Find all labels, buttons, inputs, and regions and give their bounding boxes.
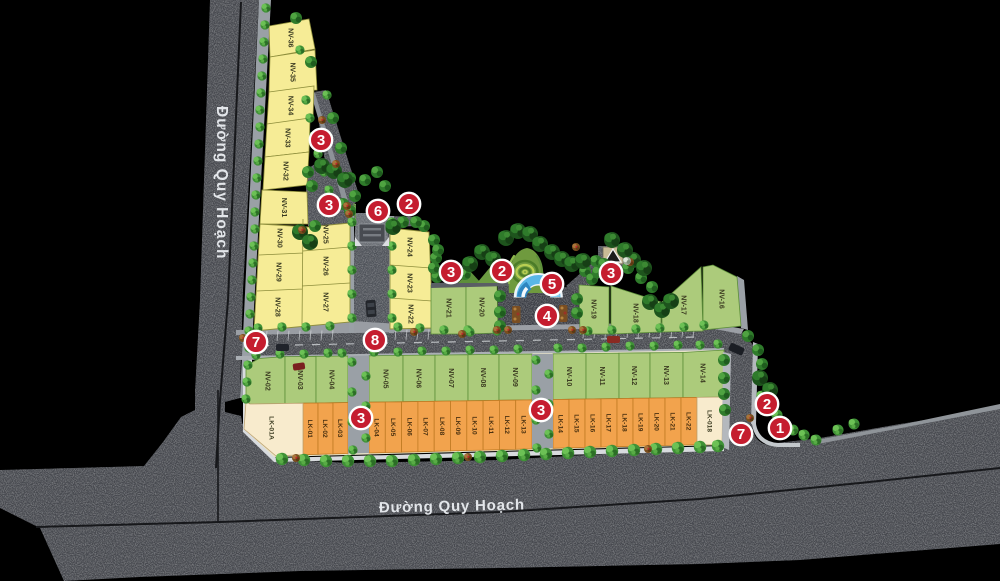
svg-text:1: 1 [776, 420, 784, 437]
svg-text:7: 7 [252, 334, 260, 351]
svg-text:NV-08: NV-08 [479, 368, 486, 388]
svg-text:LK-18: LK-18 [621, 413, 628, 432]
svg-text:4: 4 [543, 308, 552, 325]
svg-text:NV-07: NV-07 [447, 368, 454, 388]
svg-text:LK-13: LK-13 [520, 415, 527, 434]
svg-text:NV-26: NV-26 [322, 256, 329, 276]
svg-text:LK-01A: LK-01A [268, 416, 275, 440]
svg-text:LK-16: LK-16 [589, 414, 596, 433]
svg-text:LK-11: LK-11 [487, 416, 494, 434]
svg-text:LK-02: LK-02 [321, 419, 328, 438]
svg-text:NV-06: NV-06 [415, 369, 422, 389]
svg-text:LK-05: LK-05 [389, 418, 396, 437]
svg-text:NV-03: NV-03 [296, 370, 303, 390]
svg-text:LK-03: LK-03 [336, 419, 343, 438]
svg-text:NV-22: NV-22 [407, 304, 414, 324]
svg-text:NV-27: NV-27 [322, 292, 329, 312]
svg-text:NV-33: NV-33 [283, 128, 290, 148]
svg-text:NV-29: NV-29 [275, 262, 282, 282]
svg-text:NV-12: NV-12 [630, 366, 637, 386]
svg-text:NV-04: NV-04 [328, 370, 335, 390]
svg-text:3: 3 [447, 264, 455, 281]
svg-text:NV-28: NV-28 [274, 297, 281, 317]
svg-text:3: 3 [607, 265, 615, 282]
svg-text:2: 2 [498, 263, 506, 280]
svg-text:3: 3 [317, 132, 325, 149]
svg-text:LK-07: LK-07 [422, 417, 429, 436]
svg-text:NV-19: NV-19 [590, 299, 597, 319]
svg-text:7: 7 [737, 426, 745, 443]
svg-text:NV-16: NV-16 [718, 289, 725, 309]
svg-text:LK-04: LK-04 [373, 418, 380, 437]
svg-text:LK-14: LK-14 [557, 415, 564, 434]
svg-text:LK-15: LK-15 [573, 414, 580, 433]
svg-text:NV-32: NV-32 [282, 161, 289, 181]
svg-text:3: 3 [325, 197, 333, 214]
svg-text:LK-01: LK-01 [306, 420, 313, 439]
svg-text:LK-06: LK-06 [405, 418, 412, 437]
svg-text:NV-30: NV-30 [276, 228, 283, 248]
svg-text:NV-24: NV-24 [406, 237, 413, 257]
svg-text:NV-13: NV-13 [662, 365, 669, 385]
svg-text:NV-09: NV-09 [511, 367, 518, 387]
svg-text:LK-12: LK-12 [503, 416, 510, 435]
svg-text:NV-18: NV-18 [632, 303, 639, 323]
svg-text:NV-34: NV-34 [286, 96, 293, 116]
svg-text:NV-31: NV-31 [280, 198, 287, 218]
svg-text:LK-10: LK-10 [471, 416, 478, 435]
svg-text:5: 5 [548, 276, 556, 293]
svg-text:NV-20: NV-20 [478, 297, 485, 317]
svg-text:LK-19: LK-19 [637, 413, 644, 432]
svg-text:LK-09: LK-09 [454, 417, 461, 436]
svg-text:NV-10: NV-10 [565, 367, 572, 387]
svg-text:NV-23: NV-23 [406, 273, 413, 293]
svg-text:3: 3 [357, 410, 365, 427]
svg-text:LK-08: LK-08 [438, 417, 445, 436]
svg-text:NV-36: NV-36 [286, 28, 293, 48]
svg-text:NV-05: NV-05 [382, 369, 389, 389]
svg-text:NV-02: NV-02 [264, 371, 271, 391]
svg-text:3: 3 [537, 402, 545, 419]
svg-text:NV-14: NV-14 [699, 363, 706, 383]
svg-text:LK-20: LK-20 [653, 413, 660, 432]
svg-text:NV-35: NV-35 [288, 62, 295, 82]
svg-text:2: 2 [405, 196, 413, 213]
svg-text:Đường Quy Hoạch: Đường Quy Hoạch [213, 106, 230, 260]
svg-text:NV-11: NV-11 [598, 366, 605, 385]
svg-text:LK-21: LK-21 [669, 412, 676, 431]
svg-text:LK-17: LK-17 [605, 414, 612, 433]
svg-text:2: 2 [763, 396, 771, 413]
svg-text:Đường Quy Hoạch: Đường Quy Hoạch [379, 496, 525, 516]
svg-text:NV-21: NV-21 [445, 298, 452, 318]
svg-text:NV-17: NV-17 [680, 295, 687, 315]
svg-text:NV-25: NV-25 [322, 224, 329, 244]
svg-text:LK-018: LK-018 [706, 410, 713, 432]
svg-text:8: 8 [371, 332, 379, 349]
svg-text:6: 6 [374, 203, 382, 220]
svg-text:LK-22: LK-22 [685, 412, 692, 431]
